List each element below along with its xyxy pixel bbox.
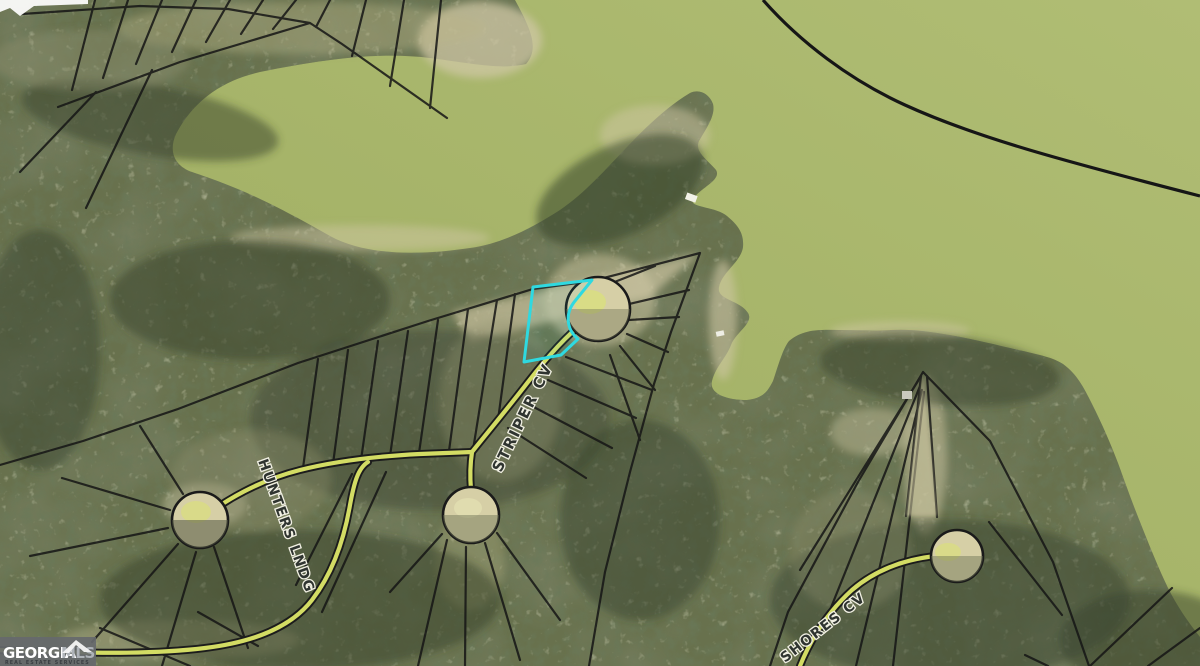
cul-de-sac-shores xyxy=(931,530,983,582)
watermark-tagline: REAL ESTATE SERVICES xyxy=(5,660,90,666)
small-structure xyxy=(902,391,912,399)
aerial-plat-map-image: STRIPER CV HUNTERS LNDG SHORES CV GEORGI… xyxy=(0,0,1200,666)
cul-de-sac-hunters xyxy=(172,492,228,548)
cul-de-sac-striper-south xyxy=(443,487,499,543)
striper-stub xyxy=(470,452,472,490)
georgia-mls-watermark: GEORGIA MLS REAL ESTATE SERVICES xyxy=(0,637,96,666)
map-canvas: STRIPER CV HUNTERS LNDG SHORES CV GEORGI… xyxy=(0,0,1200,666)
